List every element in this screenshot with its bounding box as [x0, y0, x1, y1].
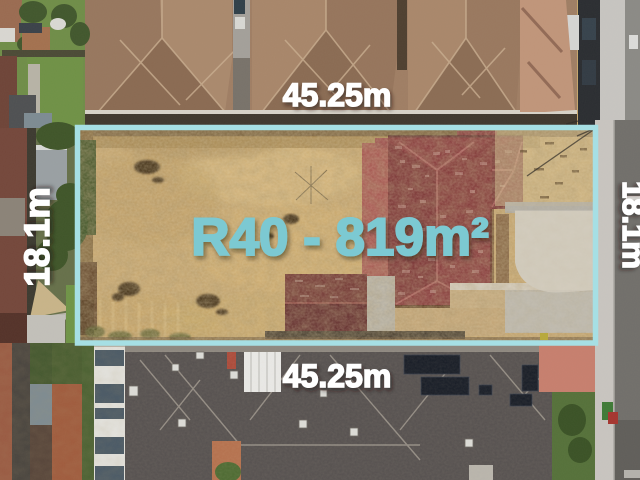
- svg-text:R40 - 819m²: R40 - 819m²: [191, 208, 489, 267]
- svg-text:18.1m: 18.1m: [616, 181, 640, 269]
- svg-text:45.25m: 45.25m: [283, 77, 392, 113]
- svg-text:45.25m: 45.25m: [283, 358, 392, 394]
- svg-text:18.1m: 18.1m: [18, 187, 57, 286]
